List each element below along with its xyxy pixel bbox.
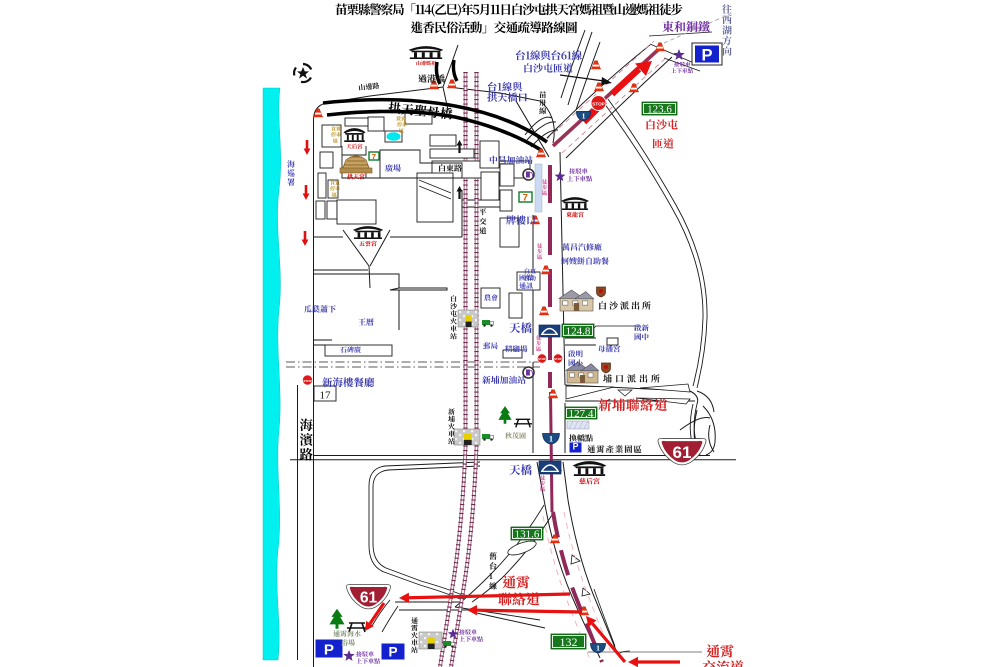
- svg-text:61: 61: [673, 443, 692, 462]
- svg-text:17: 17: [320, 390, 332, 402]
- svg-text:P: P: [573, 442, 579, 452]
- svg-text:STOP: STOP: [303, 379, 311, 383]
- svg-text:124.8: 124.8: [566, 325, 591, 337]
- svg-text:STOP: STOP: [592, 102, 605, 107]
- svg-text:132: 132: [560, 635, 578, 649]
- svg-text:1: 1: [549, 433, 553, 443]
- svg-text:61: 61: [360, 590, 378, 607]
- svg-text:STOP: STOP: [554, 357, 562, 361]
- svg-text:127.4: 127.4: [569, 408, 594, 420]
- svg-text:STOP: STOP: [538, 357, 546, 361]
- svg-text:P: P: [324, 642, 334, 659]
- svg-text:123.6: 123.6: [647, 103, 672, 115]
- svg-text:P: P: [701, 47, 712, 65]
- svg-text:1: 1: [582, 112, 586, 120]
- svg-text:7: 7: [523, 193, 528, 204]
- svg-text:131.6: 131.6: [515, 528, 540, 540]
- svg-text:1: 1: [596, 644, 600, 653]
- svg-text:P: P: [388, 645, 397, 660]
- svg-text:7: 7: [372, 152, 376, 161]
